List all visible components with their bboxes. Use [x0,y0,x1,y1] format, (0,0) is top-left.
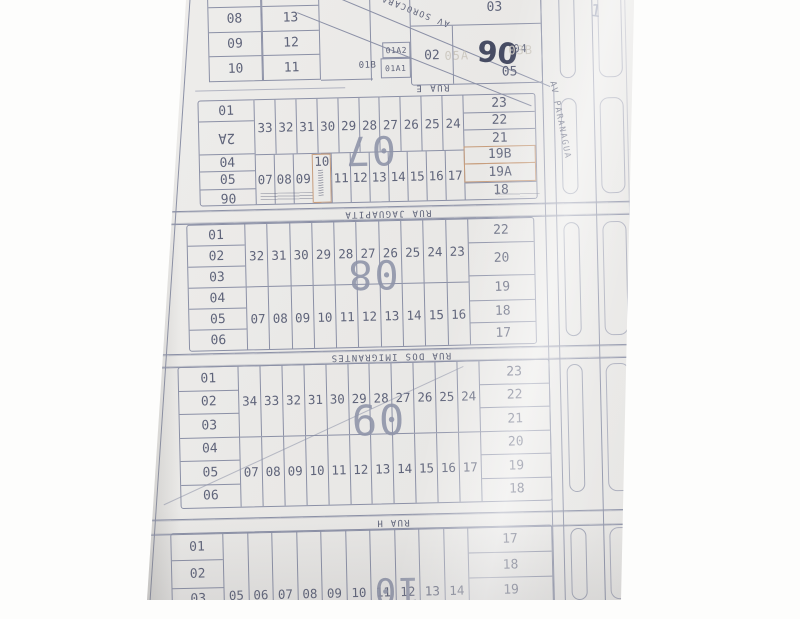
paper-sheet: 07080910 14131211 AV SOROCABA 03 02 [0,0,800,600]
photo-bottom-shade [0,510,800,600]
map-photo: 07080910 14131211 AV SOROCABA 03 02 [0,0,800,600]
